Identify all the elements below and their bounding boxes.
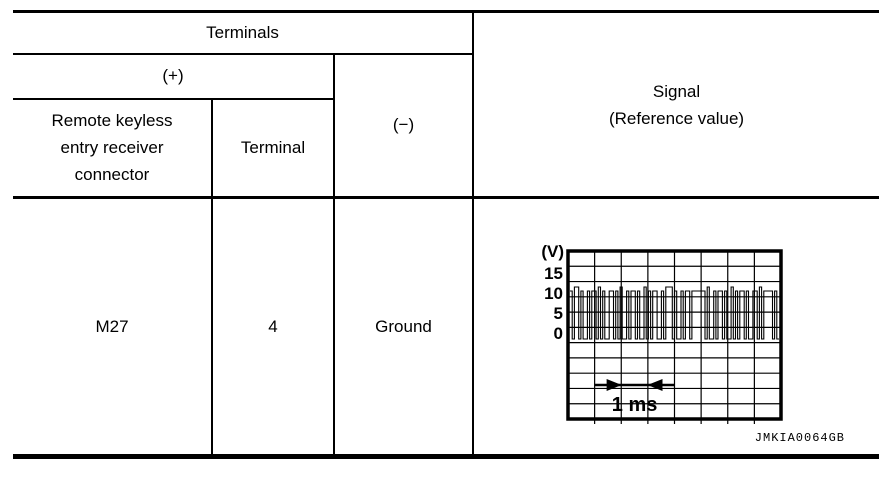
ground-value-cell: Ground [334,198,473,457]
signal-header-sublabel: (Reference value) [474,105,879,132]
terminals-header-cell: Terminals [13,12,473,54]
ground-value: Ground [375,317,432,336]
svg-text:10: 10 [544,284,563,303]
header-row-terminals: Terminals Signal (Reference value) [13,12,879,54]
connector-value: M27 [95,317,128,336]
minus-header-label: (−) [393,115,414,134]
svg-text:(V): (V) [541,242,564,261]
plus-header-label: (+) [162,66,183,85]
terminals-header-label: Terminals [206,23,279,42]
terminal-value-cell: 4 [212,198,334,457]
connector-value-cell: M27 [13,198,212,457]
svg-text:0: 0 [554,324,563,343]
terminal-column-header-cell: Terminal [212,99,334,198]
data-row: M27 4 Ground (V)1510501 ms JMKIA0064GB [13,198,879,457]
svg-text:15: 15 [544,264,563,283]
connector-column-header-label: Remote keyless entry receiver connector [46,107,178,188]
svg-text:1 ms: 1 ms [612,394,658,416]
oscilloscope-chart: (V)1510501 ms [526,237,786,427]
figure-caption: JMKIA0064GB [755,431,845,445]
svg-text:5: 5 [554,304,563,323]
plus-header-cell: (+) [13,54,334,99]
terminal-column-header-label: Terminal [241,138,305,157]
signal-waveform-cell: (V)1510501 ms JMKIA0064GB [473,198,879,457]
signal-header-cell: Signal (Reference value) [473,12,879,198]
signal-header-label: Signal [474,78,879,105]
terminal-value: 4 [268,317,277,336]
terminals-signal-table: Terminals Signal (Reference value) (+) (… [13,10,879,459]
minus-header-cell: (−) [334,54,473,198]
connector-column-header-cell: Remote keyless entry receiver connector [13,99,212,198]
